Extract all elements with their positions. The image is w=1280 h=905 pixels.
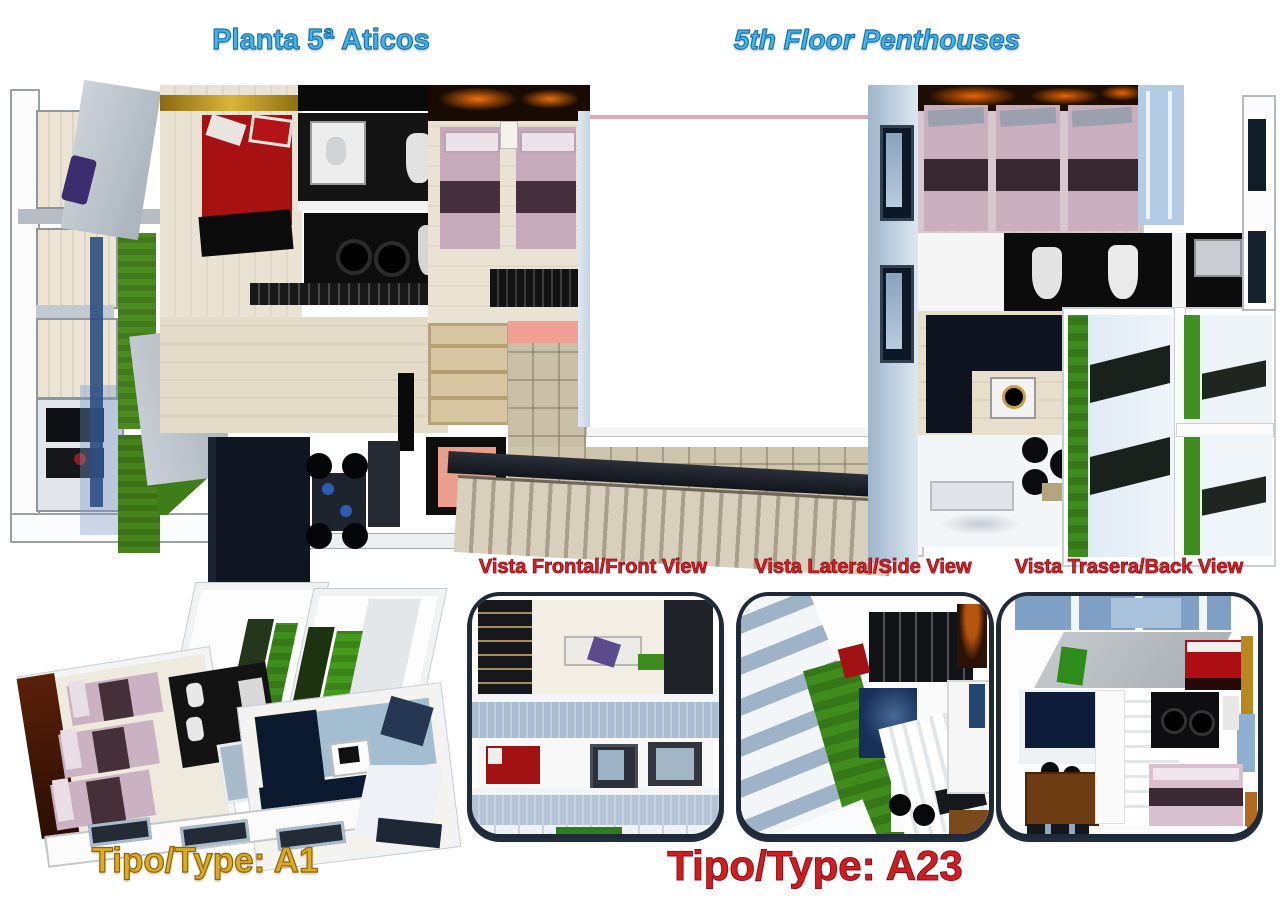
gold-strip (1241, 636, 1253, 714)
plate (340, 505, 352, 517)
glow (928, 85, 1018, 107)
bed-band (1149, 788, 1243, 806)
bed-band (98, 679, 134, 721)
glow (438, 87, 518, 111)
glow (1030, 87, 1100, 105)
side-view-card (737, 592, 993, 838)
balcony-band (472, 795, 719, 825)
mullion (1146, 91, 1150, 219)
window-glass (598, 750, 624, 780)
wall (298, 201, 446, 211)
balcony-lip (472, 788, 719, 795)
bed-band (440, 181, 500, 213)
wood-floor (1025, 772, 1099, 826)
counter (1194, 239, 1242, 277)
wardrobe (490, 269, 584, 307)
toilet (1032, 247, 1062, 299)
nightstand (500, 121, 518, 149)
plate (322, 483, 334, 495)
sink-basin (326, 137, 346, 165)
pink-beam (578, 115, 890, 119)
window-glass (886, 133, 902, 207)
green-wall (1184, 315, 1200, 419)
skylight-void (588, 111, 886, 427)
balcony-lip (472, 694, 719, 702)
wood-floor (949, 810, 991, 834)
basin (336, 239, 372, 275)
window (1027, 824, 1089, 838)
bed-band (924, 159, 988, 191)
type-a23-label: Tipo/Type: A23 (620, 842, 1010, 890)
tv-panel (398, 373, 414, 451)
cabinet (368, 441, 400, 527)
pillow (520, 131, 576, 153)
plan-title-spanish: Planta 5ª Aticos (121, 24, 521, 57)
basin (1161, 708, 1187, 734)
bed-band (1068, 159, 1138, 191)
terrace-edge (1097, 826, 1247, 838)
balcony-band (472, 702, 719, 738)
chair (913, 804, 935, 826)
window-glass (886, 273, 902, 349)
window (1248, 119, 1266, 191)
headboard-gold (160, 95, 302, 111)
green-wall (1184, 437, 1200, 555)
glow (520, 89, 580, 109)
pillow (1153, 768, 1239, 780)
sofa (926, 315, 972, 433)
green-door (1057, 646, 1088, 685)
wall (1172, 233, 1186, 311)
back-view-card (997, 592, 1262, 838)
front-view-label: Vista Frontal/Front View (462, 556, 724, 584)
bed-band (86, 777, 126, 826)
window (1248, 231, 1266, 303)
fireplace-dot (1002, 385, 1026, 409)
table-set (654, 836, 706, 838)
sofa (208, 437, 310, 587)
hall-floor (918, 233, 1004, 311)
green-wall (1068, 315, 1088, 557)
railing (90, 237, 103, 507)
bed-foot (1185, 678, 1243, 690)
dining-chair (342, 523, 368, 549)
bed-band (516, 181, 576, 213)
salmon-wall (508, 321, 588, 343)
wall (578, 111, 590, 427)
shadow (938, 513, 1022, 535)
basin (1189, 710, 1215, 736)
window-glass (656, 748, 694, 780)
main-floor-plan (10, 85, 1272, 563)
toilet (1108, 245, 1138, 299)
blanket (198, 209, 293, 257)
dining-chair (306, 523, 332, 549)
glass-wall (1138, 85, 1184, 225)
balcony (36, 228, 118, 309)
pillow (1187, 642, 1241, 652)
pillow (444, 131, 500, 153)
tv-panel (664, 600, 713, 694)
side-view-label: Vista Lateral/Side View (733, 556, 993, 584)
closet-dark (478, 600, 532, 696)
pergola-light (1111, 598, 1181, 628)
desk-chair (1022, 437, 1048, 463)
bed-band (996, 159, 1060, 191)
bedroom-glow (957, 604, 987, 668)
sink (1223, 696, 1239, 730)
penthouse-floorplan-sheet: Planta 5ª Aticos 5th Floor Penthouses Vi… (0, 0, 1280, 905)
back-view-label: Vista Trasera/Back View (993, 556, 1265, 584)
planter (556, 827, 622, 838)
dining-chair (342, 453, 368, 479)
wall (1095, 690, 1125, 824)
mullion (1168, 91, 1172, 219)
coat-rack (250, 283, 430, 305)
type-a1-label: Tipo/Type: A1 (60, 841, 350, 881)
plan-title-english: 5th Floor Penthouses (677, 24, 1077, 56)
front-view-card (468, 592, 723, 838)
pillow (488, 748, 502, 764)
bed-band (92, 727, 130, 773)
pillow (248, 114, 293, 148)
shelf-unit (428, 323, 510, 425)
table-top (338, 746, 360, 764)
chair (889, 794, 911, 816)
bench (930, 481, 1014, 511)
dining-chair (306, 453, 332, 479)
basin (374, 241, 410, 277)
iso-view-type-a1 (25, 583, 440, 845)
window (969, 684, 985, 728)
